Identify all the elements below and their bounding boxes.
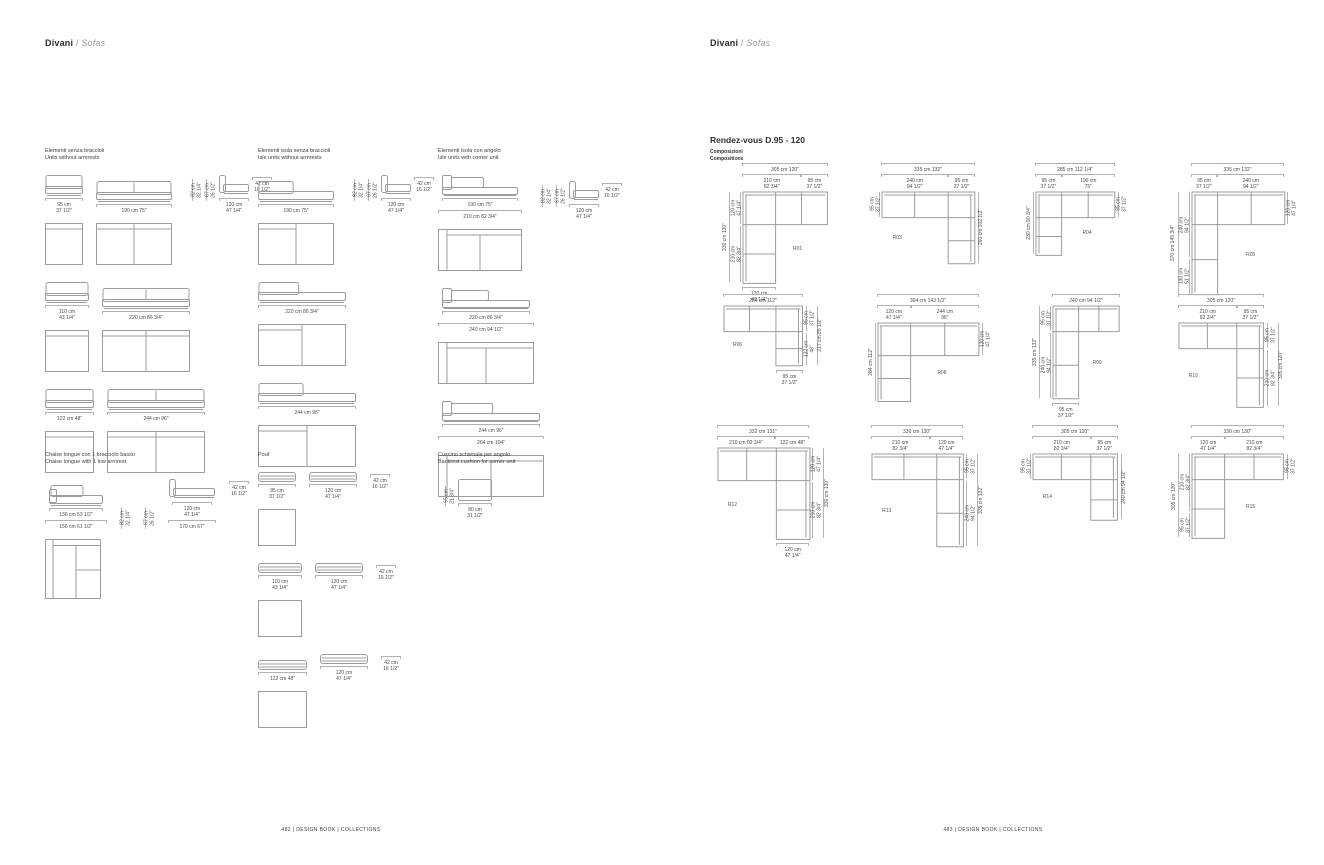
composition-side-dimensions: 95 cm37 1/2" bbox=[1117, 191, 1128, 255]
vertical-dimension-label: 120 cm47 1/4" bbox=[811, 447, 822, 481]
dimension-label: 220 cm 86 3/4" bbox=[102, 311, 190, 321]
composition-side-dimensions: 230 cm 90 3/4" bbox=[1024, 191, 1035, 255]
figure-row: 95 cm37 1/2"190 cm 75"82 cm32 1/4"67 cm2… bbox=[45, 175, 272, 214]
corner-unit-front-view: 244 cm 96"264 cm 104" bbox=[438, 401, 544, 446]
composition-drawing: R15 bbox=[1191, 453, 1285, 545]
product-title: Rendez-vous D.95 - 120 bbox=[710, 135, 805, 145]
segment-dimensions: 95 cm37 1/2"190 cm75" bbox=[1035, 174, 1115, 191]
dimension-label: 120 cm47 1/4" bbox=[1191, 436, 1225, 452]
dimension-label: 80 cm31 1/2" bbox=[458, 503, 492, 519]
composition-side-dimensions: 95 cm37 1/2"122 cm48" bbox=[805, 305, 816, 366]
dimension-label: 120 cm47 1/4" bbox=[172, 502, 212, 518]
dimension-text: 120 cm47 1/4" bbox=[811, 456, 823, 472]
chaise-longue-plan-view bbox=[45, 539, 101, 599]
composition-R13: 330 cm 130"210 cm82 3/4"120 cm47 1/4"R13… bbox=[871, 425, 987, 554]
pouf-front-view: 120 cm47 1/4" bbox=[309, 472, 357, 500]
dimension-text: 305 cm 120" bbox=[1172, 482, 1178, 510]
dimension-label: 335 cm 132" bbox=[881, 163, 975, 173]
composition-R12: 332 cm 131"210 cm 82 3/4"122 cm 48"R1212… bbox=[717, 425, 834, 546]
section-isle: Elementi isola senza braccioliIsle units… bbox=[258, 148, 434, 484]
composition-code: R01 bbox=[793, 246, 802, 252]
dimension-label: 330 cm 130" bbox=[1191, 425, 1283, 435]
dimension-text: 217 cm 85 1/2" bbox=[818, 319, 824, 352]
composition-code: R03 bbox=[893, 235, 902, 241]
composition-body: 95 cm37 1/2"R14240 cm 94 1/2" bbox=[1021, 453, 1130, 527]
vertical-dimension-label: 335 cm 132" bbox=[976, 453, 987, 547]
figure-row bbox=[438, 229, 622, 271]
dimension-label: 284 cm 112" bbox=[723, 294, 803, 304]
segment-dimensions: 120 cm47 1/4"210 cm82 3/4" bbox=[1191, 436, 1283, 453]
segment-dimensions: 120 cm47 1/4"244 cm96" bbox=[877, 305, 979, 322]
vertical-dimension-label: 230 cm 90 3/4" bbox=[1024, 191, 1035, 255]
isle-unit-front-view: 190 cm 75" bbox=[258, 181, 334, 214]
dimension-label: 95 cm37 1/2" bbox=[1091, 436, 1118, 452]
composition-body: 330 cm 130"120 cm47 1/4"210 cm82 3/4"R01… bbox=[720, 191, 829, 290]
segment-dimensions: 210 cm82 3/4"95 cm37 1/2" bbox=[1178, 305, 1263, 322]
dimension-label: 110 cm43 1/4" bbox=[45, 305, 89, 321]
dimension-text: 284 cm 112" bbox=[869, 348, 875, 376]
corner-unit-plan-view bbox=[438, 342, 534, 384]
vertical-dimension-label: 82 cm32 1/4" bbox=[353, 178, 364, 202]
dimension-label: 95 cm37 1/2" bbox=[45, 198, 83, 214]
pouf-plan-view bbox=[258, 691, 307, 728]
figure-row: 122 cm 48"120 cm47 1/4"42 cm16 1/2" bbox=[258, 654, 401, 682]
figure-row: 190 cm 75"210 cm 82 3/4"82 cm32 1/4"67 c… bbox=[438, 175, 622, 220]
dimension-label: 122 cm 48" bbox=[258, 672, 307, 682]
composition-body: 284 cm 112"R08120 cm47 1/4" bbox=[866, 322, 992, 409]
figure-row bbox=[258, 223, 434, 265]
composition-side-dimensions: 335 cm 132" bbox=[976, 453, 987, 547]
segment-dimensions: 210 cm82 3/4"95 cm37 1/2" bbox=[1032, 436, 1117, 453]
composition-side-dimensions: 95 cm37 1/2"240 cm94 1/2" bbox=[1041, 305, 1052, 399]
composition-code: R10 bbox=[1189, 373, 1198, 379]
dimension-label: 42 cm16 1/2" bbox=[376, 565, 396, 581]
composition-top-dimensions: 285 cm 112 1/4"95 cm37 1/2"190 cm75" bbox=[1035, 163, 1115, 191]
dimension-text: 95 cm37 1/2" bbox=[870, 196, 882, 212]
figure-row: 190 cm 75"82 cm32 1/4"67 cm26 1/2"120 cm… bbox=[258, 175, 434, 214]
composition-side-dimensions: 305 cm 120" bbox=[1277, 322, 1288, 407]
sofa-front-view: 110 cm43 1/4" bbox=[45, 282, 89, 321]
dimension-label: 210 cm 82 3/4" bbox=[717, 436, 776, 446]
composition-R15: 330 cm 130"120 cm47 1/4"210 cm82 3/4"305… bbox=[1169, 425, 1296, 545]
pouf-plan-view bbox=[258, 600, 302, 637]
dimension-text: 130 cm51 1/2" bbox=[1179, 268, 1191, 284]
dimension-label: 305 cm 120" bbox=[1032, 425, 1117, 435]
page-title-italic: Sofas bbox=[81, 38, 105, 48]
dimension-text: 67 cm26 1/2" bbox=[205, 182, 217, 198]
page-title-left: Divani / Sofas bbox=[45, 38, 105, 48]
composition-drawing: R0695 cm37 1/2" bbox=[723, 305, 805, 373]
composition-body: 370 cm 145 3/4"240 cm94 1/2"130 cm51 1/2… bbox=[1169, 191, 1298, 302]
composition-code: R04 bbox=[1083, 230, 1092, 236]
dimension-text: 330 cm 130" bbox=[825, 479, 831, 507]
figure-row bbox=[45, 539, 249, 599]
catalog-spread: { "pages": { "left": { "header": {"title… bbox=[0, 0, 1324, 865]
dimension-label: 210 cm82 3/4" bbox=[1225, 436, 1284, 452]
dimension-text: 210 cm82 3/4" bbox=[731, 246, 743, 262]
dimension-label: 244 cm 96" bbox=[258, 406, 356, 416]
composition-top-dimensions: 335 cm 132"95 cm37 1/2"240 cm94 1/2" bbox=[1191, 163, 1285, 191]
vertical-dimension-label: 122 cm48" bbox=[805, 332, 816, 366]
composition-top-dimensions: 330 cm 130"210 cm82 3/4"120 cm47 1/4" bbox=[871, 425, 963, 453]
composition-body: 95 cm37 1/2"R03260 cm 102 1/2" bbox=[870, 191, 988, 271]
composition-top-dimensions: 240 cm 94 1/2" bbox=[1052, 294, 1119, 304]
pouf-front-view: 110 cm43 1/4" bbox=[258, 563, 302, 591]
dimension-label: 210 cm82 3/4" bbox=[871, 436, 930, 452]
composition-code: R08 bbox=[937, 370, 946, 376]
dimension-label: 264 cm 104" bbox=[438, 436, 544, 446]
composition-R14: 305 cm 120"210 cm82 3/4"95 cm37 1/2"95 c… bbox=[1021, 425, 1130, 527]
section-pouf: Pouf95 cm37 1/2"120 cm47 1/4"42 cm16 1/2… bbox=[258, 452, 401, 745]
vertical-dimension-label: 210 cm82 3/4" bbox=[1266, 349, 1277, 408]
composition-side-dimensions: 284 cm 112" bbox=[866, 322, 877, 402]
composition-body: R1395 cm37 1/2"240 cm94 1/2"335 cm 132" bbox=[871, 453, 987, 554]
composition-drawing: R01120 cm47 1/4" bbox=[742, 191, 829, 290]
dimension-text: 260 cm 102 1/2" bbox=[980, 209, 986, 245]
dimension-label: 120 cm47 1/4" bbox=[381, 198, 411, 214]
vertical-dimension-label: 95 cm37 1/2" bbox=[1266, 322, 1277, 349]
vertical-dimension-label: 130 cm51 1/2" bbox=[1180, 258, 1191, 294]
dimension-line bbox=[1033, 192, 1034, 254]
vertical-dimension-label: 82 cm32 1/4" bbox=[541, 184, 552, 208]
compositions-grid: 305 cm 120"210 cm82 3/4"95 cm37 1/2"330 … bbox=[695, 163, 1317, 556]
dimension-text: 240 cm94 1/2" bbox=[1179, 216, 1191, 232]
dimension-label: 120 cm47 1/4" bbox=[219, 198, 249, 214]
dimension-text: 120 cm47 1/4" bbox=[731, 200, 743, 216]
chaise-longue-front-view: 136 cm 53 1/2"156 cm 61 1/2" bbox=[45, 485, 107, 530]
dimension-label: 120 cm47 1/4" bbox=[569, 204, 599, 220]
sofa-plan-view bbox=[102, 330, 190, 372]
figure-row: 220 cm 86 3/4" bbox=[258, 282, 434, 315]
vertical-dimension-label: 120 cm47 1/4" bbox=[1286, 191, 1297, 225]
vertical-dimension-label: 95 cm37 1/2" bbox=[1041, 305, 1052, 332]
dimension-text: 330 cm 130" bbox=[723, 223, 729, 251]
dimension-label: 244 cm96" bbox=[911, 305, 979, 321]
composition-top-dimensions: 335 cm 132"240 cm94 1/2"95 cm37 1/2" bbox=[881, 163, 975, 191]
dimension-text: 95 cm37 1/2" bbox=[1285, 458, 1297, 474]
corner-unit-plan-view bbox=[438, 229, 522, 271]
vertical-dimension-label: 95 cm37 1/2" bbox=[965, 453, 976, 480]
vertical-dimension-label: 95 cm37 1/2" bbox=[870, 191, 881, 218]
composition-side-dimensions: 95 cm37 1/2" bbox=[1286, 453, 1297, 538]
dimension-text: 95 cm37 1/2" bbox=[1117, 196, 1129, 212]
dimension-label: 42 cm16 1/2" bbox=[370, 474, 390, 490]
dimension-line bbox=[875, 323, 876, 401]
vertical-dimension-label: 284 cm 112" bbox=[866, 322, 877, 402]
dimension-label: 190 cm 75" bbox=[442, 198, 518, 208]
dimension-text: 95 cm37 1/2" bbox=[1265, 327, 1277, 343]
vertical-dimension-label: 67 cm26 1/2" bbox=[367, 178, 378, 202]
composition-top-dimensions: 332 cm 131"210 cm 82 3/4"122 cm 48" bbox=[717, 425, 810, 447]
dimension-label: 120 cm47 1/4" bbox=[776, 543, 810, 559]
dimension-label: 305 cm 120" bbox=[1178, 294, 1263, 304]
composition-R09: 240 cm 94 1/2"335 cm 132"95 cm37 1/2"240… bbox=[1030, 294, 1121, 406]
dimension-text: 210 cm82 3/4" bbox=[1265, 370, 1277, 386]
composition-top-dimensions: 305 cm 120"210 cm82 3/4"95 cm37 1/2" bbox=[742, 163, 827, 191]
pouf-plan-view bbox=[258, 509, 296, 546]
dimension-text: 95 cm37 1/2" bbox=[1021, 458, 1033, 474]
composition-top-dimensions: 284 cm 112" bbox=[723, 294, 803, 304]
section-title: Elementi isola senza braccioliIsle units… bbox=[258, 148, 434, 162]
dimension-label: 170 cm 67" bbox=[168, 520, 216, 530]
sofa-plan-view bbox=[45, 223, 83, 265]
dimension-label: 95 cm37 1/2" bbox=[1052, 403, 1079, 419]
isle-unit-plan-view bbox=[258, 324, 346, 366]
isle-unit-plan-view bbox=[258, 223, 334, 265]
composition-code: R05 bbox=[1246, 252, 1255, 258]
vertical-dimension-label: 67 cm26 1/2" bbox=[555, 184, 566, 208]
page-title-right: Divani / Sofas bbox=[710, 38, 770, 48]
vertical-dimension-label: 240 cm94 1/2" bbox=[1041, 332, 1052, 399]
dimension-label: 220 cm 86 3/4" bbox=[258, 305, 346, 315]
dimension-label: 210 cm82 3/4" bbox=[1178, 305, 1237, 321]
segment-dimensions: 95 cm37 1/2"240 cm94 1/2" bbox=[1191, 174, 1285, 191]
dimension-text: 67 cm26 1/2" bbox=[367, 182, 379, 198]
composition-R10: 305 cm 120"210 cm82 3/4"95 cm37 1/2"R109… bbox=[1178, 294, 1287, 414]
vertical-dimension-label: 210 cm82 3/4" bbox=[811, 481, 822, 540]
dimension-label: 42 cm16 1/2" bbox=[602, 183, 622, 199]
dimension-text: 67 cm26 1/2" bbox=[555, 188, 567, 204]
dimension-label: 190 cm75" bbox=[1062, 174, 1115, 190]
dimension-label: 95 cm37 1/2" bbox=[258, 484, 296, 500]
vertical-dimension-label: 95 cm37 1/2" bbox=[1286, 453, 1297, 480]
vertical-dimension-label: 120 cm47 1/4" bbox=[981, 322, 992, 356]
composition-R03: 335 cm 132"240 cm94 1/2"95 cm37 1/2"95 c… bbox=[870, 163, 988, 271]
dimension-label: 120 cm47 1/4" bbox=[309, 484, 357, 500]
figure-row bbox=[45, 330, 272, 372]
page-right: Divani / Sofas Rendez-vous D.95 - 120 Co… bbox=[662, 0, 1324, 865]
section-title: Elementi isola con angoloIsle units with… bbox=[438, 148, 622, 162]
pouf-front-view: 95 cm37 1/2" bbox=[258, 472, 296, 500]
composition-side-dimensions: 240 cm 94 1/2" bbox=[1120, 453, 1131, 520]
composition-body: 335 cm 132"95 cm37 1/2"240 cm94 1/2"R099… bbox=[1030, 305, 1121, 406]
sofa-front-view: 122 cm 48" bbox=[45, 389, 94, 422]
composition-drawing: R0995 cm37 1/2" bbox=[1052, 305, 1121, 406]
composition-top-dimensions: 305 cm 120"210 cm82 3/4"95 cm37 1/2" bbox=[1178, 294, 1263, 322]
section-title: Chaise longue con 1 bracciolo bassoChais… bbox=[45, 452, 249, 466]
composition-side-dimensions: 210 cm82 3/4"95 cm37 1/2" bbox=[1180, 453, 1191, 538]
composition-side-dimensions: 95 cm37 1/2" bbox=[1021, 453, 1032, 520]
sofa-plan-view bbox=[45, 330, 89, 372]
composition-body: R1095 cm37 1/2"210 cm82 3/4"305 cm 120" bbox=[1178, 322, 1287, 414]
section-title: Pouf bbox=[258, 452, 401, 459]
dimension-label: 42 cm16 1/2" bbox=[229, 481, 249, 497]
composition-side-dimensions: 240 cm94 1/2"130 cm51 1/2" bbox=[1180, 191, 1191, 295]
dimension-text: 67 cm26 1/2" bbox=[144, 510, 156, 526]
composition-body: 305 cm 120"210 cm82 3/4"95 cm37 1/2"R159… bbox=[1169, 453, 1296, 545]
dimension-label: 95 cm37 1/2" bbox=[776, 370, 803, 386]
composition-drawing: R05 bbox=[1191, 191, 1287, 302]
vertical-dimension-label: 67 cm26 1/2" bbox=[144, 506, 155, 530]
isle-unit-front-view: 244 cm 96" bbox=[258, 383, 356, 416]
figure-row: 110 cm43 1/4"120 cm47 1/4"42 cm16 1/2" bbox=[258, 563, 401, 591]
dimension-label: 42 cm16 1/2" bbox=[381, 656, 401, 672]
section-chaise: Chaise longue con 1 bracciolo bassoChais… bbox=[45, 452, 249, 616]
figure-row bbox=[258, 691, 401, 728]
vertical-dimension-label: 82 cm32 1/4" bbox=[191, 178, 202, 202]
composition-R04: 285 cm 112 1/4"95 cm37 1/2"190 cm75"230 … bbox=[1024, 163, 1128, 262]
vertical-dimension-label: 330 cm 130" bbox=[822, 447, 833, 539]
page-title-bold: Divani bbox=[45, 38, 73, 48]
composition-side-dimensions: 120 cm47 1/4"210 cm82 3/4" bbox=[731, 191, 742, 283]
dimension-text: 95 cm37 1/2" bbox=[965, 458, 977, 474]
figure-row bbox=[258, 600, 401, 637]
composition-side-dimensions: 217 cm 85 1/2" bbox=[816, 305, 827, 366]
figure-row: 110 cm43 1/4"220 cm 86 3/4" bbox=[45, 282, 272, 321]
dimension-label: 330 cm 130" bbox=[871, 425, 963, 435]
corner-unit-front-view: 190 cm 75"210 cm 82 3/4" bbox=[438, 175, 522, 220]
composition-code: R09 bbox=[1093, 360, 1102, 366]
dimension-label: 156 cm 61 1/2" bbox=[45, 520, 107, 530]
dimension-text: 120 cm47 1/4" bbox=[981, 331, 993, 347]
dimension-text: 305 cm 120" bbox=[1279, 351, 1285, 379]
dimension-label: 240 cm 94 1/2" bbox=[438, 323, 534, 333]
composition-drawing: R08 bbox=[877, 322, 981, 409]
dimension-label: 210 cm82 3/4" bbox=[1032, 436, 1091, 452]
dimension-label: 240 cm 94 1/2" bbox=[1052, 294, 1119, 304]
composition-code: R12 bbox=[728, 502, 737, 508]
pouf-front-view: 120 cm47 1/4" bbox=[320, 654, 368, 682]
vertical-dimension-label: 82 cm32 1/4" bbox=[120, 506, 131, 530]
page-title-italic: Sofas bbox=[746, 38, 770, 48]
sofa-side-view: 120 cm47 1/4" bbox=[381, 175, 411, 214]
dimension-label: 120 cm47 1/4" bbox=[315, 575, 363, 591]
isle-unit-front-view: 220 cm 86 3/4" bbox=[258, 282, 346, 315]
page-left: Divani / Sofas Elementi senza braccioliU… bbox=[0, 0, 662, 865]
composition-side-dimensions: 95 cm37 1/2" bbox=[870, 191, 881, 264]
figure-row bbox=[438, 342, 622, 384]
composition-drawing: R12120 cm47 1/4" bbox=[717, 447, 812, 546]
composition-top-dimensions: 305 cm 120"210 cm82 3/4"95 cm37 1/2" bbox=[1032, 425, 1117, 453]
vertical-dimension-label: 210 cm82 3/4" bbox=[731, 225, 742, 284]
composition-code: R14 bbox=[1043, 494, 1052, 500]
dimension-text: 55 cm21 3/4" bbox=[444, 488, 456, 504]
composition-side-dimensions: 95 cm37 1/2"210 cm82 3/4" bbox=[1266, 322, 1277, 407]
dimension-label: 190 cm 75" bbox=[258, 204, 334, 214]
composition-drawing: R04 bbox=[1035, 191, 1117, 262]
cushion-group: 55 cm21 3/4"80 cm31 1/2" bbox=[444, 479, 492, 519]
segment-dimensions: 210 cm82 3/4"95 cm37 1/2" bbox=[742, 174, 827, 191]
composition-side-dimensions: 120 cm47 1/4" bbox=[981, 322, 992, 402]
composition-side-dimensions: 95 cm37 1/2"240 cm94 1/2" bbox=[965, 453, 976, 547]
vertical-dimension-label: 67 cm26 1/2" bbox=[205, 178, 216, 202]
figure-row: 136 cm 53 1/2"156 cm 61 1/2"82 cm32 1/4"… bbox=[45, 479, 249, 530]
corner-unit-front-view: 220 cm 86 3/4"240 cm 94 1/2" bbox=[438, 288, 534, 333]
vertical-dimension-label: 240 cm94 1/2" bbox=[965, 480, 976, 547]
dimension-label: 122 cm 48" bbox=[775, 436, 809, 446]
composition-body: 230 cm 90 3/4"R0495 cm37 1/2" bbox=[1024, 191, 1128, 262]
dimension-label: 364 cm 143 1/2" bbox=[877, 294, 979, 304]
vertical-dimension-label: 95 cm37 1/2" bbox=[1117, 191, 1128, 218]
vertical-dimension-label: 120 cm47 1/4" bbox=[731, 191, 742, 225]
composition-code: R13 bbox=[882, 508, 891, 514]
vertical-dimension-label: 305 cm 120" bbox=[1277, 322, 1288, 407]
figure-row: 122 cm 48"244 cm 96" bbox=[45, 389, 272, 422]
dimension-text: 210 cm82 3/4" bbox=[811, 502, 823, 518]
page-title-bold: Divani bbox=[710, 38, 738, 48]
dimension-label: 244 cm 96" bbox=[107, 412, 205, 422]
dimension-text: 95 cm37 1/2" bbox=[1180, 517, 1192, 533]
composition-drawing: R14 bbox=[1032, 453, 1119, 527]
vertical-dimension-label: 95 cm37 1/2" bbox=[1180, 512, 1191, 539]
dimension-label: 95 cm37 1/2" bbox=[948, 174, 975, 190]
composition-side-dimensions: 260 cm 102 1/2" bbox=[977, 191, 988, 264]
subtitle-it: Composizioni bbox=[710, 149, 743, 156]
dimension-label: 210 cm 82 3/4" bbox=[438, 210, 522, 220]
dimension-text: 82 cm32 1/4" bbox=[541, 188, 553, 204]
segment-dimensions: 210 cm 82 3/4"122 cm 48" bbox=[717, 436, 810, 447]
dimension-label: 95 cm37 1/2" bbox=[1237, 305, 1264, 321]
dimension-text: 95 cm37 1/2" bbox=[1041, 310, 1053, 326]
dimension-label: 122 cm 48" bbox=[45, 412, 94, 422]
chaise-longue-side-view: 120 cm47 1/4"170 cm 67" bbox=[168, 479, 216, 530]
dimension-text: 240 cm94 1/2" bbox=[965, 505, 977, 521]
figure-row bbox=[45, 223, 272, 265]
pouf-front-view: 122 cm 48" bbox=[258, 660, 307, 682]
segment-dimensions: 240 cm94 1/2"95 cm37 1/2" bbox=[881, 174, 975, 191]
figure-row: 220 cm 86 3/4"240 cm 94 1/2" bbox=[438, 288, 622, 333]
dimension-label: 95 cm37 1/2" bbox=[1035, 174, 1062, 190]
composition-top-dimensions: 330 cm 130"120 cm47 1/4"210 cm82 3/4" bbox=[1191, 425, 1283, 453]
compositions-subtitle: Composizioni Compositions bbox=[710, 149, 743, 162]
page-footer-left: 482 | DESIGN BOOK | COLLECTIONS bbox=[0, 827, 662, 833]
vertical-dimension-label: 95 cm37 1/2" bbox=[805, 305, 816, 332]
composition-side-dimensions: 120 cm47 1/4"210 cm82 3/4" bbox=[811, 447, 822, 539]
composition-body: R12120 cm47 1/4"120 cm47 1/4"210 cm82 3/… bbox=[717, 447, 834, 546]
figure-row: 244 cm 96"264 cm 104" bbox=[438, 401, 622, 446]
sofa-front-view: 190 cm 75" bbox=[96, 181, 172, 214]
section-title: Cuscino schienale per angoloBackrest cus… bbox=[438, 452, 515, 466]
sofa-front-view: 95 cm37 1/2" bbox=[45, 175, 83, 214]
section-cushion: Cuscino schienale per angoloBackrest cus… bbox=[438, 452, 515, 528]
dimension-label: 110 cm43 1/4" bbox=[258, 575, 302, 591]
composition-code: R15 bbox=[1246, 504, 1255, 510]
backrest-cushion-view: 80 cm31 1/2" bbox=[458, 479, 492, 519]
figure-row: 244 cm 96" bbox=[258, 383, 434, 416]
figure-row: 95 cm37 1/2"120 cm47 1/4"42 cm16 1/2" bbox=[258, 472, 401, 500]
segment-dimensions: 210 cm82 3/4"120 cm47 1/4" bbox=[871, 436, 963, 453]
side-view-group: 82 cm32 1/4"67 cm26 1/2"120 cm47 1/4"42 … bbox=[541, 181, 622, 220]
composition-side-dimensions: 120 cm47 1/4" bbox=[1286, 191, 1297, 295]
subtitle-en: Compositions bbox=[710, 156, 743, 163]
sofa-plan-view bbox=[96, 223, 172, 265]
composition-code: R06 bbox=[733, 342, 742, 348]
composition-top-dimensions: 364 cm 143 1/2"120 cm47 1/4"244 cm96" bbox=[877, 294, 979, 322]
figure-row bbox=[258, 324, 434, 366]
dimension-label: 120 cm47 1/4" bbox=[877, 305, 911, 321]
dimension-text: 210 cm82 3/4" bbox=[1180, 474, 1192, 490]
composition-drawing: R03 bbox=[881, 191, 977, 271]
composition-R01: 305 cm 120"210 cm82 3/4"95 cm37 1/2"330 … bbox=[720, 163, 829, 290]
vertical-dimension-label: 95 cm37 1/2" bbox=[1021, 453, 1032, 480]
dimension-text: 95 cm37 1/2" bbox=[805, 310, 817, 326]
dimension-label: 244 cm 96" bbox=[442, 424, 540, 434]
dimension-text: 370 cm 145 3/4" bbox=[1171, 225, 1177, 261]
dimension-label: 210 cm82 3/4" bbox=[742, 174, 801, 190]
dimension-label: 285 cm 112 1/4" bbox=[1035, 163, 1115, 173]
composition-R06: 284 cm 112"R0695 cm37 1/2"95 cm37 1/2"12… bbox=[723, 294, 827, 373]
dimension-label: 136 cm 53 1/2" bbox=[49, 508, 103, 518]
dimension-label: 332 cm 131" bbox=[717, 425, 810, 435]
page-footer-right: 483 | DESIGN BOOK | COLLECTIONS bbox=[662, 827, 1324, 833]
dimension-label: 95 cm37 1/2" bbox=[801, 174, 828, 190]
vertical-dimension-label: 55 cm21 3/4" bbox=[444, 485, 455, 507]
dimension-text: 230 cm 90 3/4" bbox=[1027, 206, 1033, 239]
sofa-side-view: 120 cm47 1/4" bbox=[219, 175, 249, 214]
dimension-label: 220 cm 86 3/4" bbox=[442, 311, 530, 321]
sofa-front-view: 244 cm 96" bbox=[107, 389, 205, 422]
vertical-dimension-label: 217 cm 85 1/2" bbox=[816, 305, 827, 366]
